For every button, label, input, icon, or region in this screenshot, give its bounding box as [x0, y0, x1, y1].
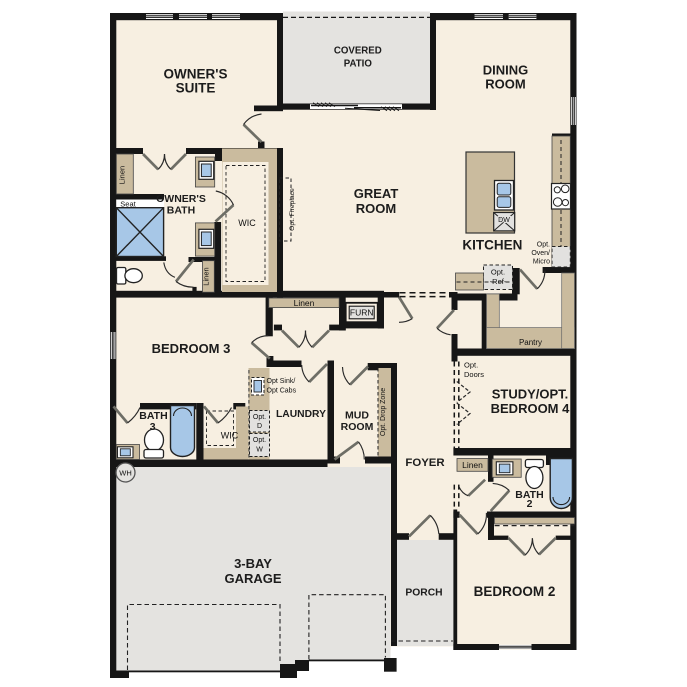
svg-text:LAUNDRY: LAUNDRY [276, 409, 326, 420]
svg-text:BATH: BATH [167, 205, 195, 217]
svg-text:2: 2 [527, 498, 533, 510]
svg-text:DINING: DINING [483, 63, 529, 78]
svg-text:KITCHEN: KITCHEN [462, 238, 522, 253]
svg-text:WIC: WIC [221, 431, 239, 441]
svg-text:-Ref-: -Ref- [490, 277, 507, 286]
svg-text:OWNER'S: OWNER'S [156, 193, 206, 205]
svg-text:Opt.: Opt. [537, 242, 550, 249]
svg-text:BEDROOM 2: BEDROOM 2 [474, 584, 556, 599]
svg-text:Linen: Linen [462, 460, 483, 470]
svg-text:Pantry: Pantry [519, 338, 542, 347]
svg-text:Micro: Micro [533, 259, 550, 266]
svg-text:3-BAY: 3-BAY [234, 556, 272, 571]
svg-text:Linen: Linen [202, 267, 211, 285]
svg-text:Opt.: Opt. [491, 268, 505, 277]
svg-text:MUD: MUD [345, 410, 369, 422]
svg-text:Opt. Drop Zone: Opt. Drop Zone [380, 388, 387, 436]
svg-text:SUITE: SUITE [176, 81, 216, 96]
svg-text:Seat: Seat [120, 200, 136, 209]
svg-text:COVERED: COVERED [334, 46, 382, 57]
svg-text:Oven/: Oven/ [531, 250, 550, 257]
svg-text:W: W [256, 447, 263, 454]
svg-text:3: 3 [150, 421, 156, 433]
svg-text:STUDY/OPT.: STUDY/OPT. [492, 387, 569, 402]
svg-text:Doors: Doors [464, 370, 484, 379]
svg-text:DW: DW [498, 217, 510, 224]
svg-text:Opt.: Opt. [253, 414, 266, 421]
svg-text:BEDROOM 4: BEDROOM 4 [491, 401, 571, 416]
svg-text:WIC: WIC [238, 218, 256, 228]
svg-text:Opt.: Opt. [464, 361, 478, 370]
svg-text:ROOM: ROOM [356, 201, 396, 216]
svg-text:OWNER'S: OWNER'S [164, 67, 228, 82]
svg-text:GARAGE: GARAGE [224, 571, 281, 586]
svg-text:ROOM: ROOM [485, 77, 525, 92]
svg-text:Opt. Fireplace: Opt. Fireplace [289, 188, 296, 231]
svg-text:Opt Cabs: Opt Cabs [267, 388, 297, 395]
svg-text:Opt Sink/: Opt Sink/ [267, 378, 296, 385]
svg-text:Opt.: Opt. [253, 437, 266, 444]
svg-text:FOYER: FOYER [405, 457, 444, 469]
svg-text:PORCH: PORCH [405, 588, 442, 599]
svg-text:BEDROOM 3: BEDROOM 3 [152, 341, 231, 356]
svg-text:FURN: FURN [350, 308, 374, 318]
svg-text:WH: WH [119, 468, 132, 477]
svg-text:Linen: Linen [294, 298, 315, 308]
svg-text:GREAT: GREAT [354, 186, 399, 201]
svg-text:Linen: Linen [118, 166, 127, 184]
svg-text:D: D [257, 423, 262, 430]
svg-text:PATIO: PATIO [344, 59, 373, 70]
svg-text:ROOM: ROOM [341, 421, 374, 433]
